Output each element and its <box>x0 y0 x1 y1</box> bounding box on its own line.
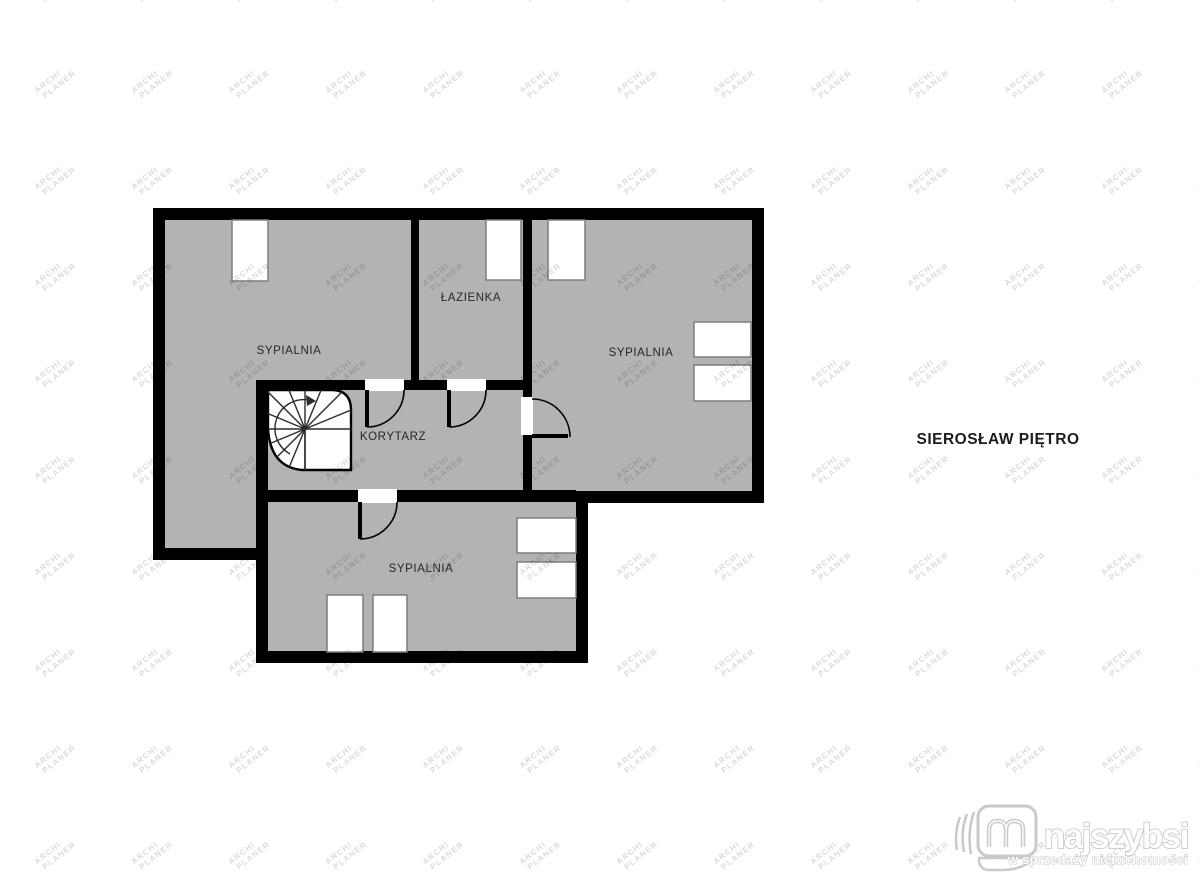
door-leaf <box>532 434 568 438</box>
logo-page-stripe <box>970 812 974 854</box>
watermark-text: ARCHIPLANER <box>906 447 951 488</box>
door-opening <box>365 379 404 391</box>
watermark-text: ARCHIPLANER <box>227 833 272 874</box>
watermark-text: ARCHIPLANER <box>421 158 466 199</box>
watermark-text: ARCHIPLANER <box>324 61 369 102</box>
watermark-text: ARCHIPLANER <box>712 736 757 777</box>
watermark-text: ARCHIPLANER <box>421 61 466 102</box>
watermark-text: ARCHIPLANER <box>1003 0 1048 6</box>
watermark-text: ARCHIPLANER <box>809 640 854 681</box>
door-leaf <box>365 390 369 427</box>
furniture <box>694 322 751 357</box>
watermark-text: ARCHIPLANER <box>324 158 369 199</box>
watermark-text: ARCHIPLANER <box>615 158 660 199</box>
watermark-text: ARCHIPLANER <box>615 833 660 874</box>
watermark-text: ARCHIPLANER <box>809 254 854 295</box>
door-leaf <box>447 390 451 427</box>
watermark-text: ARCHIPLANER <box>130 158 175 199</box>
watermark-text: ARCHIPLANER <box>809 158 854 199</box>
watermark-text: ARCHIPLANER <box>1003 640 1048 681</box>
watermark-text: ARCHIPLANER <box>33 640 78 681</box>
watermark-text: ARCHIPLANER <box>615 0 660 6</box>
watermark-text: ARCHIPLANER <box>906 640 951 681</box>
door-leaf <box>358 502 362 539</box>
watermark-text: ARCHIPLANER <box>615 640 660 681</box>
room-label-bedroom-bottom: SYPIALNIA <box>389 563 454 575</box>
watermark-text: ARCHIPLANER <box>809 0 854 6</box>
logo-page-stripe <box>956 817 960 850</box>
watermark-text: ARCHIPLANER <box>1100 736 1145 777</box>
watermark-text: ARCHIPLANER <box>421 0 466 6</box>
watermark-text: ARCHIPLANER <box>906 833 951 874</box>
watermark-text: ARCHIPLANER <box>227 158 272 199</box>
plan-title: SIEROSŁAW PIĘTRO <box>916 431 1079 448</box>
room-label-bedroom-right: SYPIALNIA <box>609 347 674 359</box>
watermark-text: ARCHIPLANER <box>1003 351 1048 392</box>
watermark-text: ARCHIPLANER <box>1100 61 1145 102</box>
watermark-text: ARCHIPLANER <box>615 61 660 102</box>
room-label-corridor: KORYTARZ <box>360 431 426 443</box>
watermark-text: ARCHIPLANER <box>518 833 563 874</box>
watermark-text: ARCHIPLANER <box>809 61 854 102</box>
watermark-text: ARCHIPLANER <box>906 543 951 584</box>
wall <box>256 490 576 502</box>
logo-brand-text: najszybsi <box>1044 817 1188 856</box>
watermark-text: ARCHIPLANER <box>906 254 951 295</box>
wall <box>411 220 419 390</box>
watermark-text: ARCHIPLANER <box>1003 61 1048 102</box>
watermark-text: ARCHIPLANER <box>809 736 854 777</box>
watermark-text: ARCHIPLANER <box>615 543 660 584</box>
room-label-bedroom-left: SYPIALNIA <box>257 345 322 357</box>
watermark-text: ARCHIPLANER <box>712 640 757 681</box>
logo: najszybsi w sprzedaży nieruchomości <box>956 806 1188 870</box>
watermark-text: ARCHIPLANER <box>1100 447 1145 488</box>
watermark-text: ARCHIPLANER <box>712 543 757 584</box>
watermark-text: ARCHIPLANER <box>712 0 757 6</box>
watermark-text: ARCHIPLANER <box>712 61 757 102</box>
watermark-text: ARCHIPLANER <box>130 61 175 102</box>
watermark-text: ARCHIPLANER <box>1003 736 1048 777</box>
watermark-text: ARCHIPLANER <box>809 833 854 874</box>
watermark-text: ARCHIPLANER <box>615 736 660 777</box>
watermark-text: ARCHIPLANER <box>1100 543 1145 584</box>
watermark-text: ARCHIPLANER <box>421 833 466 874</box>
watermark-text: ARCHIPLANER <box>809 447 854 488</box>
door-opening <box>447 379 486 391</box>
watermark-text: ARCHIPLANER <box>809 543 854 584</box>
watermark-text: ARCHIPLANER <box>33 351 78 392</box>
watermark-text: ARCHIPLANER <box>33 158 78 199</box>
watermark-text: ARCHIPLANER <box>130 640 175 681</box>
floor-area <box>165 220 752 651</box>
watermark-text: ARCHIPLANER <box>518 61 563 102</box>
watermark-text: ARCHIPLANER <box>1003 158 1048 199</box>
watermark-text: ARCHIPLANER <box>906 351 951 392</box>
door-opening <box>358 489 397 503</box>
furniture <box>327 595 363 652</box>
furniture <box>486 220 521 280</box>
watermark-text: ARCHIPLANER <box>1100 158 1145 199</box>
wall <box>523 220 532 490</box>
watermark-text: ARCHIPLANER <box>33 833 78 874</box>
watermark-text: ARCHIPLANER <box>518 158 563 199</box>
watermark-text: ARCHIPLANER <box>809 351 854 392</box>
watermark-text: ARCHIPLANER <box>906 736 951 777</box>
furniture <box>517 518 576 553</box>
watermark-text: ARCHIPLANER <box>324 0 369 6</box>
watermark-text: ARCHIPLANER <box>33 254 78 295</box>
logo-page-stripe <box>963 814 967 852</box>
watermark-text: ARCHIPLANER <box>33 61 78 102</box>
watermark-text: ARCHIPLANER <box>906 0 951 6</box>
watermark-text: ARCHIPLANER <box>712 833 757 874</box>
watermark-text: ARCHIPLANER <box>518 0 563 6</box>
watermark-text: ARCHIPLANER <box>1003 543 1048 584</box>
watermark-text: ARCHIPLANER <box>227 0 272 6</box>
watermark-text: ARCHIPLANER <box>33 543 78 584</box>
watermark-text: ARCHIPLANER <box>324 833 369 874</box>
watermark-text: ARCHIPLANER <box>1100 0 1145 6</box>
watermark-text: ARCHIPLANER <box>1100 351 1145 392</box>
watermark-text: ARCHIPLANER <box>130 0 175 6</box>
watermark-text: ARCHIPLANER <box>712 158 757 199</box>
watermark-text: ARCHIPLANER <box>33 736 78 777</box>
watermark-text: ARCHIPLANER <box>130 736 175 777</box>
watermark-text: ARCHIPLANER <box>33 0 78 6</box>
room-label-bathroom: ŁAZIENKA <box>441 292 501 304</box>
watermark-text: ARCHIPLANER <box>130 833 175 874</box>
watermark-text: ARCHIPLANER <box>33 447 78 488</box>
door-opening <box>521 397 533 435</box>
watermark-text: ARCHIPLANER <box>518 736 563 777</box>
watermark-text: ARCHIPLANER <box>227 61 272 102</box>
watermark-text: ARCHIPLANER <box>227 736 272 777</box>
watermark-text: ARCHIPLANER <box>906 158 951 199</box>
watermark-text: ARCHIPLANER <box>906 61 951 102</box>
watermark-text: ARCHIPLANER <box>324 736 369 777</box>
floor-plan-canvas: ARCHIPLANERARCHIPLANERARCHIPLANERARCHIPL… <box>0 0 1200 878</box>
watermark-text: ARCHIPLANER <box>421 736 466 777</box>
logo-tagline-text: w sprzedaży nieruchomości <box>1007 852 1188 867</box>
wall <box>256 388 268 663</box>
watermark-text: ARCHIPLANER <box>1003 447 1048 488</box>
watermark-text: ARCHIPLANER <box>1100 640 1145 681</box>
watermark-text: ARCHIPLANER <box>1003 254 1048 295</box>
furniture <box>373 595 407 652</box>
watermark-text: ARCHIPLANER <box>1100 254 1145 295</box>
